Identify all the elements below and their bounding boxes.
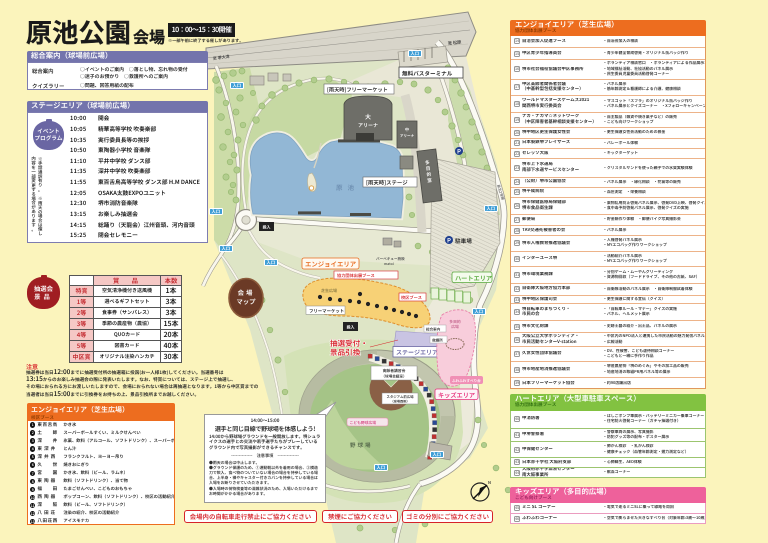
svg-text:野球場: 野球場 bbox=[350, 441, 373, 449]
svg-text:キッズエリア: キッズエリア bbox=[438, 390, 475, 399]
svg-text:中: 中 bbox=[405, 127, 409, 133]
svg-text:アリーナ: アリーナ bbox=[400, 134, 415, 139]
svg-text:広場: 広場 bbox=[451, 324, 459, 330]
svg-text:ステージエリア: ステージエリア bbox=[396, 348, 438, 357]
svg-text:大: 大 bbox=[365, 112, 371, 121]
svg-text:（球場西側）: （球場西側） bbox=[390, 399, 409, 404]
svg-text:総合案内: 総合案内 bbox=[426, 326, 441, 332]
svg-text:ふわふわすべり台: ふわふわすべり台 bbox=[452, 378, 481, 384]
svg-text:ハートエリア: ハートエリア bbox=[455, 273, 492, 282]
svg-text:原池: 原池 bbox=[336, 182, 359, 192]
svg-text:エンジョイエリア: エンジョイエリア bbox=[305, 260, 357, 269]
svg-text:matoi: matoi bbox=[384, 261, 394, 266]
svg-text:アリーナ: アリーナ bbox=[358, 122, 378, 129]
svg-text:P: P bbox=[457, 147, 461, 156]
svg-text:高齢者講習会: 高齢者講習会 bbox=[383, 368, 406, 374]
svg-text:協力団体出展ブース: 協力団体出展ブース bbox=[337, 273, 375, 279]
svg-text:P: P bbox=[447, 236, 451, 245]
svg-text:搬入: 搬入 bbox=[263, 225, 271, 231]
svg-text:無料バスターミナル: 無料バスターミナル bbox=[402, 69, 453, 77]
svg-text:こども野球広場: こども野球広場 bbox=[350, 420, 377, 426]
svg-text:校区ブース: 校区ブース bbox=[401, 295, 422, 301]
svg-text:[雨天時]フリーマーケット: [雨天時]フリーマーケット bbox=[327, 87, 388, 94]
svg-text:景品引換: 景品引換 bbox=[330, 347, 361, 358]
svg-text:[雨天時]ステージ: [雨天時]ステージ bbox=[366, 179, 408, 187]
svg-text:会場: 会場 bbox=[238, 288, 255, 297]
svg-text:駐車場: 駐車場 bbox=[455, 237, 472, 245]
svg-text:フリーマーケット: フリーマーケット bbox=[309, 308, 344, 314]
svg-text:搬入: 搬入 bbox=[347, 325, 355, 331]
svg-text:（球場会議室）: （球場会議室） bbox=[381, 374, 406, 380]
svg-text:N: N bbox=[488, 480, 491, 486]
svg-text:救護所: 救護所 bbox=[432, 337, 443, 343]
svg-text:マップ: マップ bbox=[236, 297, 256, 306]
svg-text:芝生広場: 芝生広場 bbox=[321, 288, 337, 294]
